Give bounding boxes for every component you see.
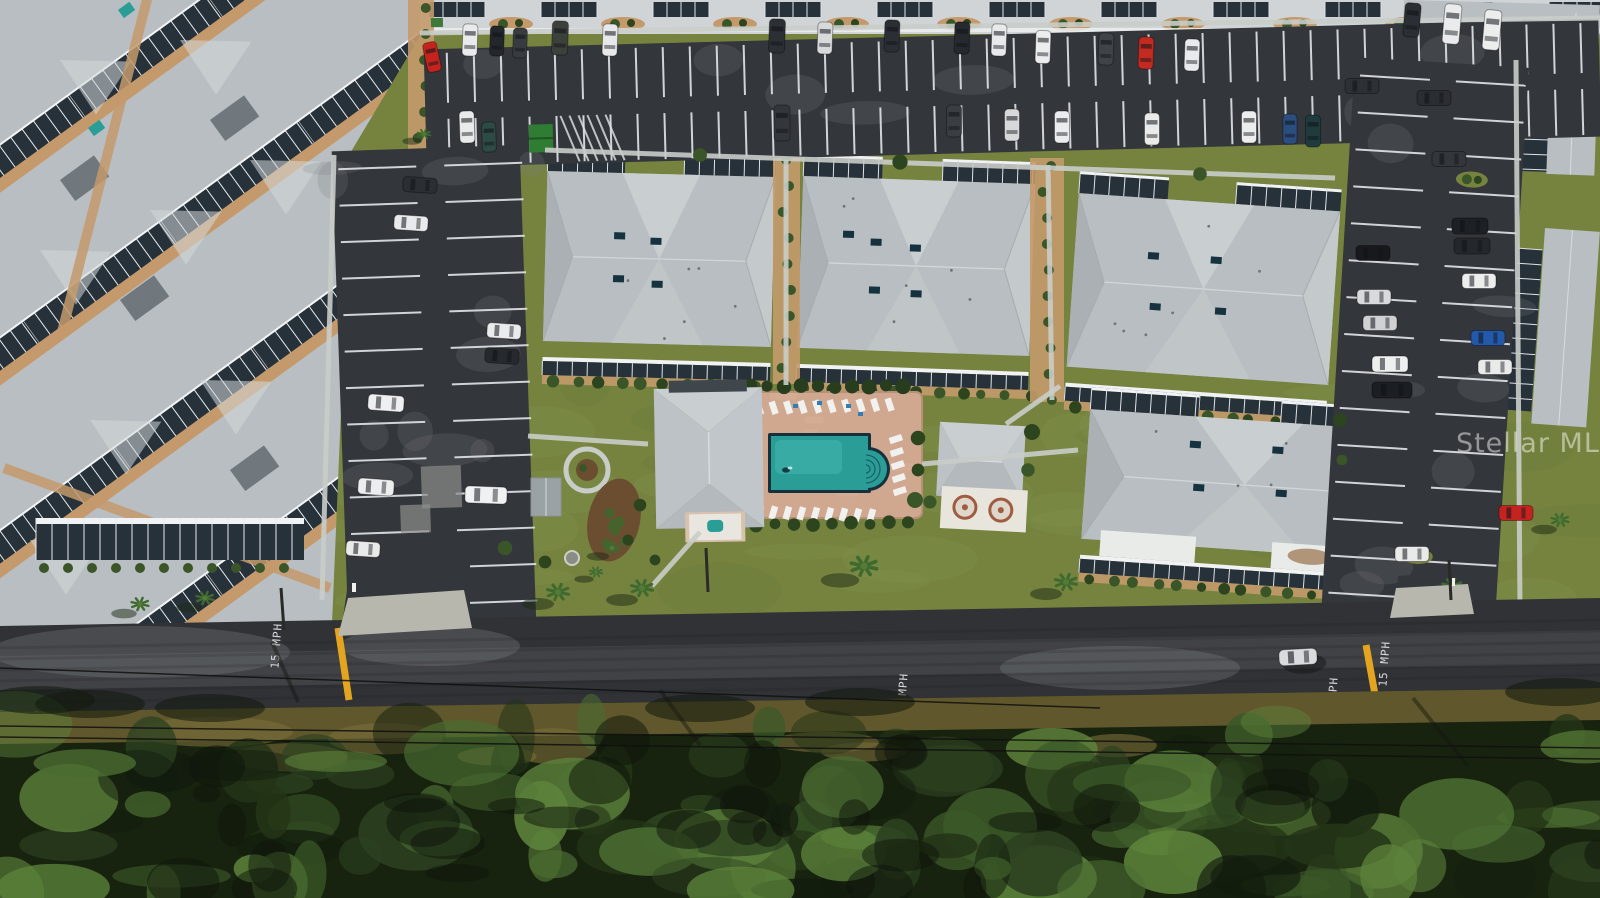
car bbox=[1471, 331, 1505, 346]
car-body bbox=[485, 347, 520, 364]
car bbox=[462, 24, 478, 57]
car bbox=[602, 24, 618, 57]
car-body bbox=[1357, 290, 1391, 305]
car bbox=[1145, 113, 1160, 145]
car bbox=[1306, 115, 1321, 147]
car bbox=[357, 478, 394, 496]
car bbox=[394, 214, 429, 231]
car bbox=[1363, 316, 1397, 331]
car bbox=[1442, 3, 1462, 44]
car bbox=[768, 19, 785, 54]
car-body bbox=[367, 394, 404, 412]
car bbox=[1357, 290, 1391, 305]
driveway-apron bbox=[1390, 584, 1474, 618]
car bbox=[1184, 39, 1200, 72]
car bbox=[817, 22, 833, 55]
car-body bbox=[1395, 547, 1429, 562]
car-body bbox=[1478, 360, 1512, 375]
aerial-photo-canvas: 15 MPH15 MPH15 MPH15 MPH bbox=[0, 0, 1600, 898]
car-body bbox=[1432, 152, 1466, 167]
car-body bbox=[1345, 79, 1379, 94]
car-body bbox=[403, 176, 438, 193]
car bbox=[1462, 274, 1496, 289]
car-body bbox=[817, 22, 833, 55]
car-body bbox=[884, 20, 900, 53]
car-body bbox=[1454, 238, 1490, 254]
car-body bbox=[462, 24, 478, 57]
car-body bbox=[394, 214, 429, 231]
car bbox=[1283, 114, 1297, 144]
car-body bbox=[947, 105, 962, 137]
car-body bbox=[1145, 113, 1160, 145]
car bbox=[1035, 30, 1051, 64]
car-body bbox=[1184, 39, 1200, 72]
aerial-photo: 15 MPH15 MPH15 MPH15 MPH Stellar MLS bbox=[0, 0, 1600, 898]
car bbox=[774, 105, 790, 141]
car bbox=[465, 486, 508, 504]
car-body bbox=[1471, 331, 1505, 346]
car bbox=[1356, 246, 1390, 261]
car bbox=[367, 394, 404, 412]
car-body bbox=[774, 105, 790, 141]
car bbox=[1395, 547, 1429, 562]
clubhouse bbox=[654, 379, 765, 543]
utility-pole bbox=[706, 548, 708, 592]
car-body bbox=[1356, 246, 1390, 261]
car-body bbox=[489, 26, 504, 56]
car bbox=[346, 540, 381, 557]
car-body bbox=[1499, 506, 1533, 521]
car bbox=[884, 20, 900, 53]
car bbox=[481, 122, 496, 152]
car bbox=[512, 28, 527, 58]
car bbox=[1372, 356, 1408, 372]
car-body bbox=[1242, 111, 1257, 143]
car bbox=[991, 24, 1007, 57]
car bbox=[485, 347, 520, 364]
road-sign bbox=[352, 583, 356, 592]
car-body bbox=[991, 24, 1007, 57]
car bbox=[954, 22, 970, 55]
car bbox=[1345, 79, 1379, 94]
car-body bbox=[602, 24, 618, 57]
tree-shadow bbox=[805, 688, 915, 716]
car-body bbox=[1482, 9, 1502, 50]
car bbox=[1499, 506, 1533, 521]
car bbox=[1098, 33, 1114, 66]
car-body bbox=[768, 19, 785, 54]
car bbox=[1403, 2, 1422, 37]
car bbox=[403, 176, 438, 193]
car bbox=[1138, 37, 1154, 70]
car bbox=[1482, 9, 1502, 50]
car bbox=[1417, 91, 1451, 106]
car-body bbox=[1372, 356, 1408, 372]
tree-shadow bbox=[155, 694, 265, 722]
car-body bbox=[346, 540, 381, 557]
car-body bbox=[1417, 91, 1451, 106]
car bbox=[1372, 382, 1412, 398]
car bbox=[551, 21, 568, 56]
car-body bbox=[1283, 114, 1297, 144]
car-body bbox=[1306, 115, 1321, 147]
car bbox=[489, 26, 504, 56]
car-body bbox=[1442, 3, 1462, 44]
car bbox=[1055, 111, 1070, 143]
car bbox=[1454, 238, 1490, 254]
car-body bbox=[1055, 111, 1070, 143]
car bbox=[947, 105, 962, 137]
utility-pole bbox=[1449, 560, 1451, 600]
car-body bbox=[551, 21, 568, 56]
car-body bbox=[1462, 274, 1496, 289]
car-body bbox=[465, 486, 508, 504]
car bbox=[1242, 111, 1257, 143]
car bbox=[1005, 109, 1020, 141]
car bbox=[1478, 360, 1512, 375]
car-body bbox=[357, 478, 394, 496]
car-body bbox=[1403, 2, 1422, 37]
car-body bbox=[954, 22, 970, 55]
car-body bbox=[1452, 218, 1488, 234]
car-body bbox=[1372, 382, 1412, 398]
forest bbox=[0, 678, 1600, 898]
car-body bbox=[459, 111, 475, 144]
car bbox=[1432, 152, 1466, 167]
car bbox=[487, 322, 522, 339]
car-body bbox=[487, 322, 522, 339]
tree-shadow bbox=[645, 694, 755, 722]
road-sign bbox=[1452, 578, 1455, 586]
car-body bbox=[512, 28, 527, 58]
car-body bbox=[1005, 109, 1020, 141]
car-body bbox=[1363, 316, 1397, 331]
car-body bbox=[1138, 37, 1154, 70]
car bbox=[459, 111, 475, 144]
car-body bbox=[481, 122, 496, 152]
shuffleboard-court bbox=[940, 486, 1028, 532]
car bbox=[1452, 218, 1488, 234]
aprons bbox=[1390, 584, 1474, 618]
car-body bbox=[1035, 30, 1051, 64]
car-body bbox=[1098, 33, 1114, 66]
